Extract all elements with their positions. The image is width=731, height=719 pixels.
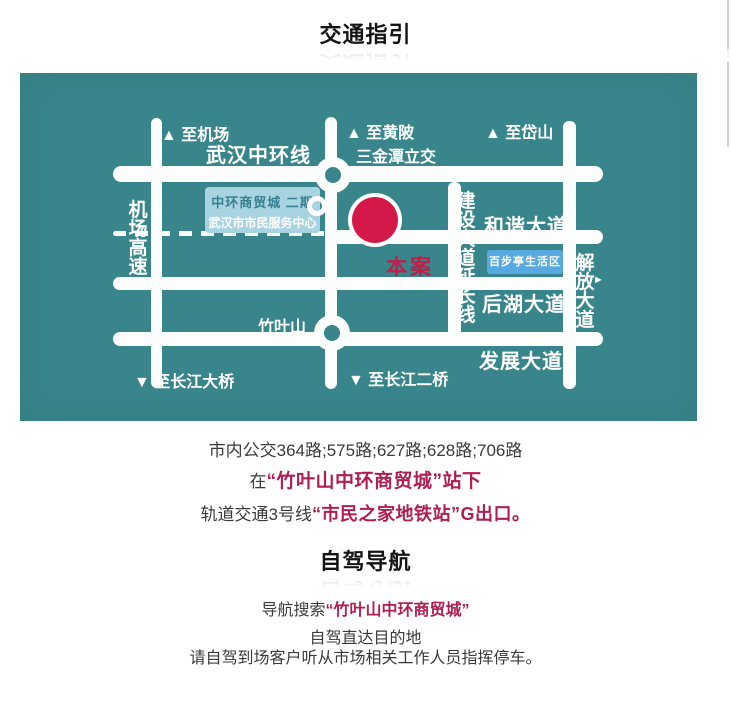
label-to-daishan: ▲ 至岱山 [485,119,553,143]
label-sanjintan-interchange: 三金潭立交 [356,143,436,167]
roundabout-sanjintan-hole [325,167,341,183]
traffic-title-reflection: 交通指引 [0,49,731,62]
road-airport-expressway [151,118,162,388]
reflection-fade [0,49,731,62]
label-to-changjiang-bridge: ▼ 至长江大桥 [134,368,234,392]
traffic-section-title: 交通指引 [0,21,731,49]
bus-stop-prefix: 在 [249,472,266,491]
label-jianshe-ave-extension: 建设大道延长线 [455,192,477,325]
direct-arrival-line: 自驾直达目的地 [0,628,731,650]
label-houhu-ave: 后湖大道 [482,288,566,317]
label-to-huangpi: ▲ 至黄陂 [346,119,414,143]
metro-line: 轨道交通3号线“市民之家地铁站”G出口。 [0,503,731,527]
parking-note-line: 请自驾到场客户听从市场相关工作人员指挥停车。 [0,648,731,670]
location-ring-icon [307,196,327,216]
info-box-zhonghuan: 中环商贸城 二期 武汉市市民服务中心 [205,187,320,233]
info-box-zhonghuan-subtitle: 武汉市市民服务中心 [205,214,320,231]
site-marker-dot [352,197,398,243]
road-fazhan-ave [113,332,603,346]
site-marker-label: 本案 [386,251,434,281]
label-airport-expressway: 机场高速 [127,201,149,277]
nav-search-line: 导航搜索“竹叶山中环商贸城” [0,600,731,622]
reflection-fade [0,576,731,589]
label-harmony-ave: 和谐大道 [484,210,568,239]
transit-map-image: 本案 中环商贸城 二期 武汉市市民服务中心 百步亭生活区 ▲ 至机场 武汉中环线… [20,73,697,421]
label-wuhan-mid-ring: 武汉中环线 [206,139,311,168]
label-jiefang-ave: 解放大道 [574,254,596,330]
info-box-baibuting: 百步亭生活区 [487,250,563,274]
road-wuhan-mid-ring [113,166,603,182]
metro-prefix: 轨道交通3号线 [201,505,312,524]
driving-title-reflection: 自驾导航 [0,576,731,589]
bus-stop-highlight: “竹叶山中环商贸城”站下 [266,471,481,492]
label-fazhan-ave: 发展大道 [479,345,563,374]
label-zhuyeshan: 竹叶山 [258,313,306,337]
metro-highlight: “市民之家地铁站”G出口。 [312,504,531,524]
arrow-right-icon: ► [593,274,604,286]
nav-search-prefix: 导航搜索 [261,602,325,619]
nav-search-highlight: “竹叶山中环商贸城” [326,602,470,619]
roundabout-zhuyeshan-hole [324,325,340,341]
bus-stop-line: 在“竹叶山中环商贸城”站下 [0,471,731,494]
info-box-zhonghuan-title: 中环商贸城 二期 [205,192,320,211]
label-to-changjiang-second-bridge: ▼ 至长江二桥 [348,366,448,390]
bus-routes-line: 市内公交364路;575路;627路;628路;706路 [0,440,731,462]
article-page: 交通指引 交通指引 本案 中环商贸城 二期 武汉市市民服务中心 百步亭生活区 [0,0,731,719]
driving-section-title: 自驾导航 [0,548,731,576]
